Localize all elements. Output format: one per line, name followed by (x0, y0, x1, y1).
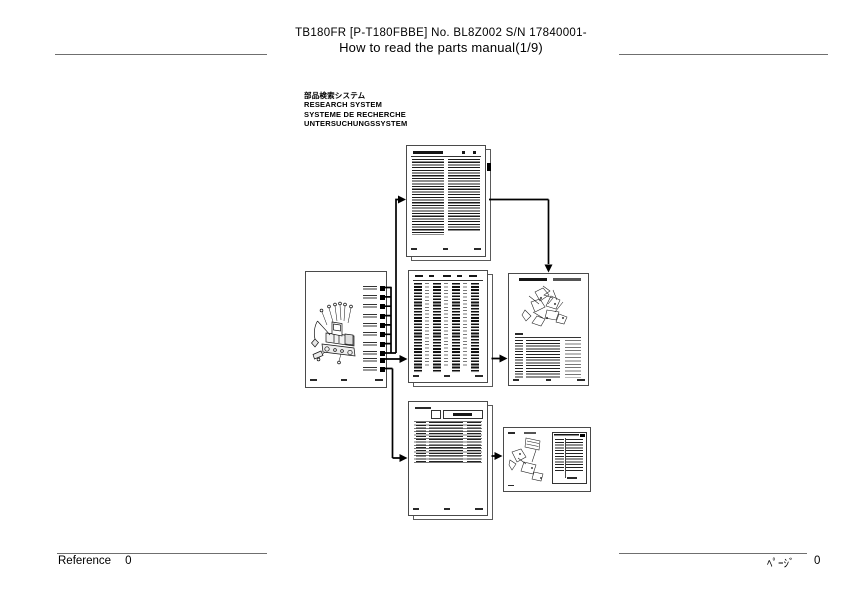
toc-header-rule (411, 156, 481, 157)
machine-footer-mark-left (310, 379, 317, 381)
machine-footer-mark-right (375, 379, 383, 381)
detail-table-name-column (526, 340, 560, 378)
index-footer-mark-left (413, 375, 419, 377)
detail-footer-mark-right (577, 379, 585, 381)
small-page-title-mark (524, 432, 536, 434)
toc-column-right (448, 159, 480, 231)
detail-footer-mark-left (513, 379, 519, 381)
index-column-5 (452, 283, 460, 373)
toc-footer-mark-center (443, 248, 448, 250)
section-label-7 (363, 342, 385, 347)
exploded-view-illustration (517, 284, 579, 332)
reference-number: 0 (125, 555, 131, 567)
toc-col-mark-1 (462, 151, 465, 154)
research-system-en: RESEARCH SYSTEM (304, 100, 407, 109)
small-table-footer-smudge (567, 477, 577, 479)
section-label-8 (363, 351, 385, 356)
small-table-divider (565, 438, 566, 478)
research-system-block: 部品検索システム RESEARCH SYSTEM SYSTEME DE RECH… (304, 91, 407, 129)
index-header-rule (413, 280, 483, 281)
small-table-left-column (555, 439, 564, 471)
small-table-black-cell (580, 434, 585, 437)
index-header-mark-3 (443, 275, 451, 277)
index-header-mark-2 (429, 275, 434, 277)
small-table-right-column (566, 439, 583, 471)
detail-footer-mark-center (546, 379, 551, 381)
small-page-footer-mark (508, 485, 514, 486)
section-label-5 (363, 323, 385, 328)
list-header-text-mark (415, 407, 431, 409)
manual-page: TB180FR [P-T180FBBE] No. BL8Z002 S/N 178… (0, 0, 842, 596)
parts-detail-small-page-thumbnail (503, 427, 591, 492)
section-label-10 (363, 367, 385, 372)
detail-title-smudge (519, 278, 547, 281)
list-wide-box-text (453, 413, 472, 416)
list-table-page-column (467, 422, 481, 464)
list-footer-mark-center (444, 508, 450, 510)
research-system-de: UNTERSUCHUNGSSYSTEM (304, 119, 407, 128)
section-label-2 (363, 295, 385, 300)
parts-list-page-thumbnail (408, 401, 488, 516)
model-serial-line: TB180FR [P-T180FBBE] No. BL8Z002 S/N 178… (40, 27, 842, 39)
page-footer-number: 0 (814, 555, 820, 567)
detail-table-header-rule (515, 337, 581, 338)
index-column-7 (471, 283, 479, 373)
list-small-box (431, 410, 441, 419)
list-table-name-column (429, 422, 463, 464)
index-column-1 (414, 283, 422, 373)
index-header-mark-5 (469, 275, 477, 277)
section-label-6 (363, 332, 385, 337)
small-page-corner-mark (508, 432, 515, 434)
research-system-fr: SYSTEME DE RECHERCHE (304, 110, 407, 119)
index-column-2 (425, 283, 429, 367)
index-header-mark-1 (415, 275, 423, 277)
detail-subtitle-smudge (553, 278, 581, 281)
detail-table-qty-column (565, 340, 581, 378)
detail-table-index-column (515, 340, 523, 378)
toc-footer-mark-left (411, 248, 417, 250)
table-of-contents-page-thumbnail (406, 145, 486, 257)
small-exploded-view-illustration (508, 436, 550, 484)
list-footer-mark-right (475, 508, 483, 510)
list-wide-box (443, 410, 483, 419)
thumb-index-tab (487, 163, 491, 171)
index-footer-mark-right (475, 375, 483, 377)
list-footer-mark-left (413, 508, 419, 510)
index-footer-mark-center (444, 375, 450, 377)
toc-column-left (412, 159, 444, 235)
bottom-right-rule (619, 553, 807, 554)
section-label-1 (363, 286, 385, 291)
top-left-rule (55, 54, 267, 55)
reference-footer: Reference0 (58, 555, 131, 567)
toc-title-smudge (413, 151, 443, 154)
small-page-table (552, 432, 587, 484)
parts-index-page-thumbnail (408, 270, 488, 383)
machine-overview-page-thumbnail (305, 271, 387, 388)
research-system-ja: 部品検索システム (304, 91, 407, 100)
index-header-mark-4 (457, 275, 462, 277)
section-label-3 (363, 304, 385, 309)
toc-footer-mark-right (474, 248, 481, 250)
top-right-rule (619, 54, 828, 55)
section-label-9 (363, 358, 385, 363)
machine-footer-mark-center (341, 379, 347, 381)
page-footer-label: ﾍﾟｰｼﾞ (767, 555, 795, 571)
list-table-index-column (416, 422, 426, 464)
index-column-4 (444, 283, 448, 367)
bottom-left-rule (57, 553, 267, 554)
parts-detail-page-thumbnail (508, 273, 589, 386)
toc-col-mark-2 (473, 151, 476, 154)
small-table-header-smudge (554, 434, 579, 437)
index-column-6 (463, 283, 467, 367)
section-label-4 (363, 314, 385, 319)
reference-label: Reference (58, 555, 111, 567)
index-column-3 (433, 283, 441, 373)
excavator-illustration (309, 296, 363, 366)
detail-table-ref-mark (515, 333, 523, 335)
